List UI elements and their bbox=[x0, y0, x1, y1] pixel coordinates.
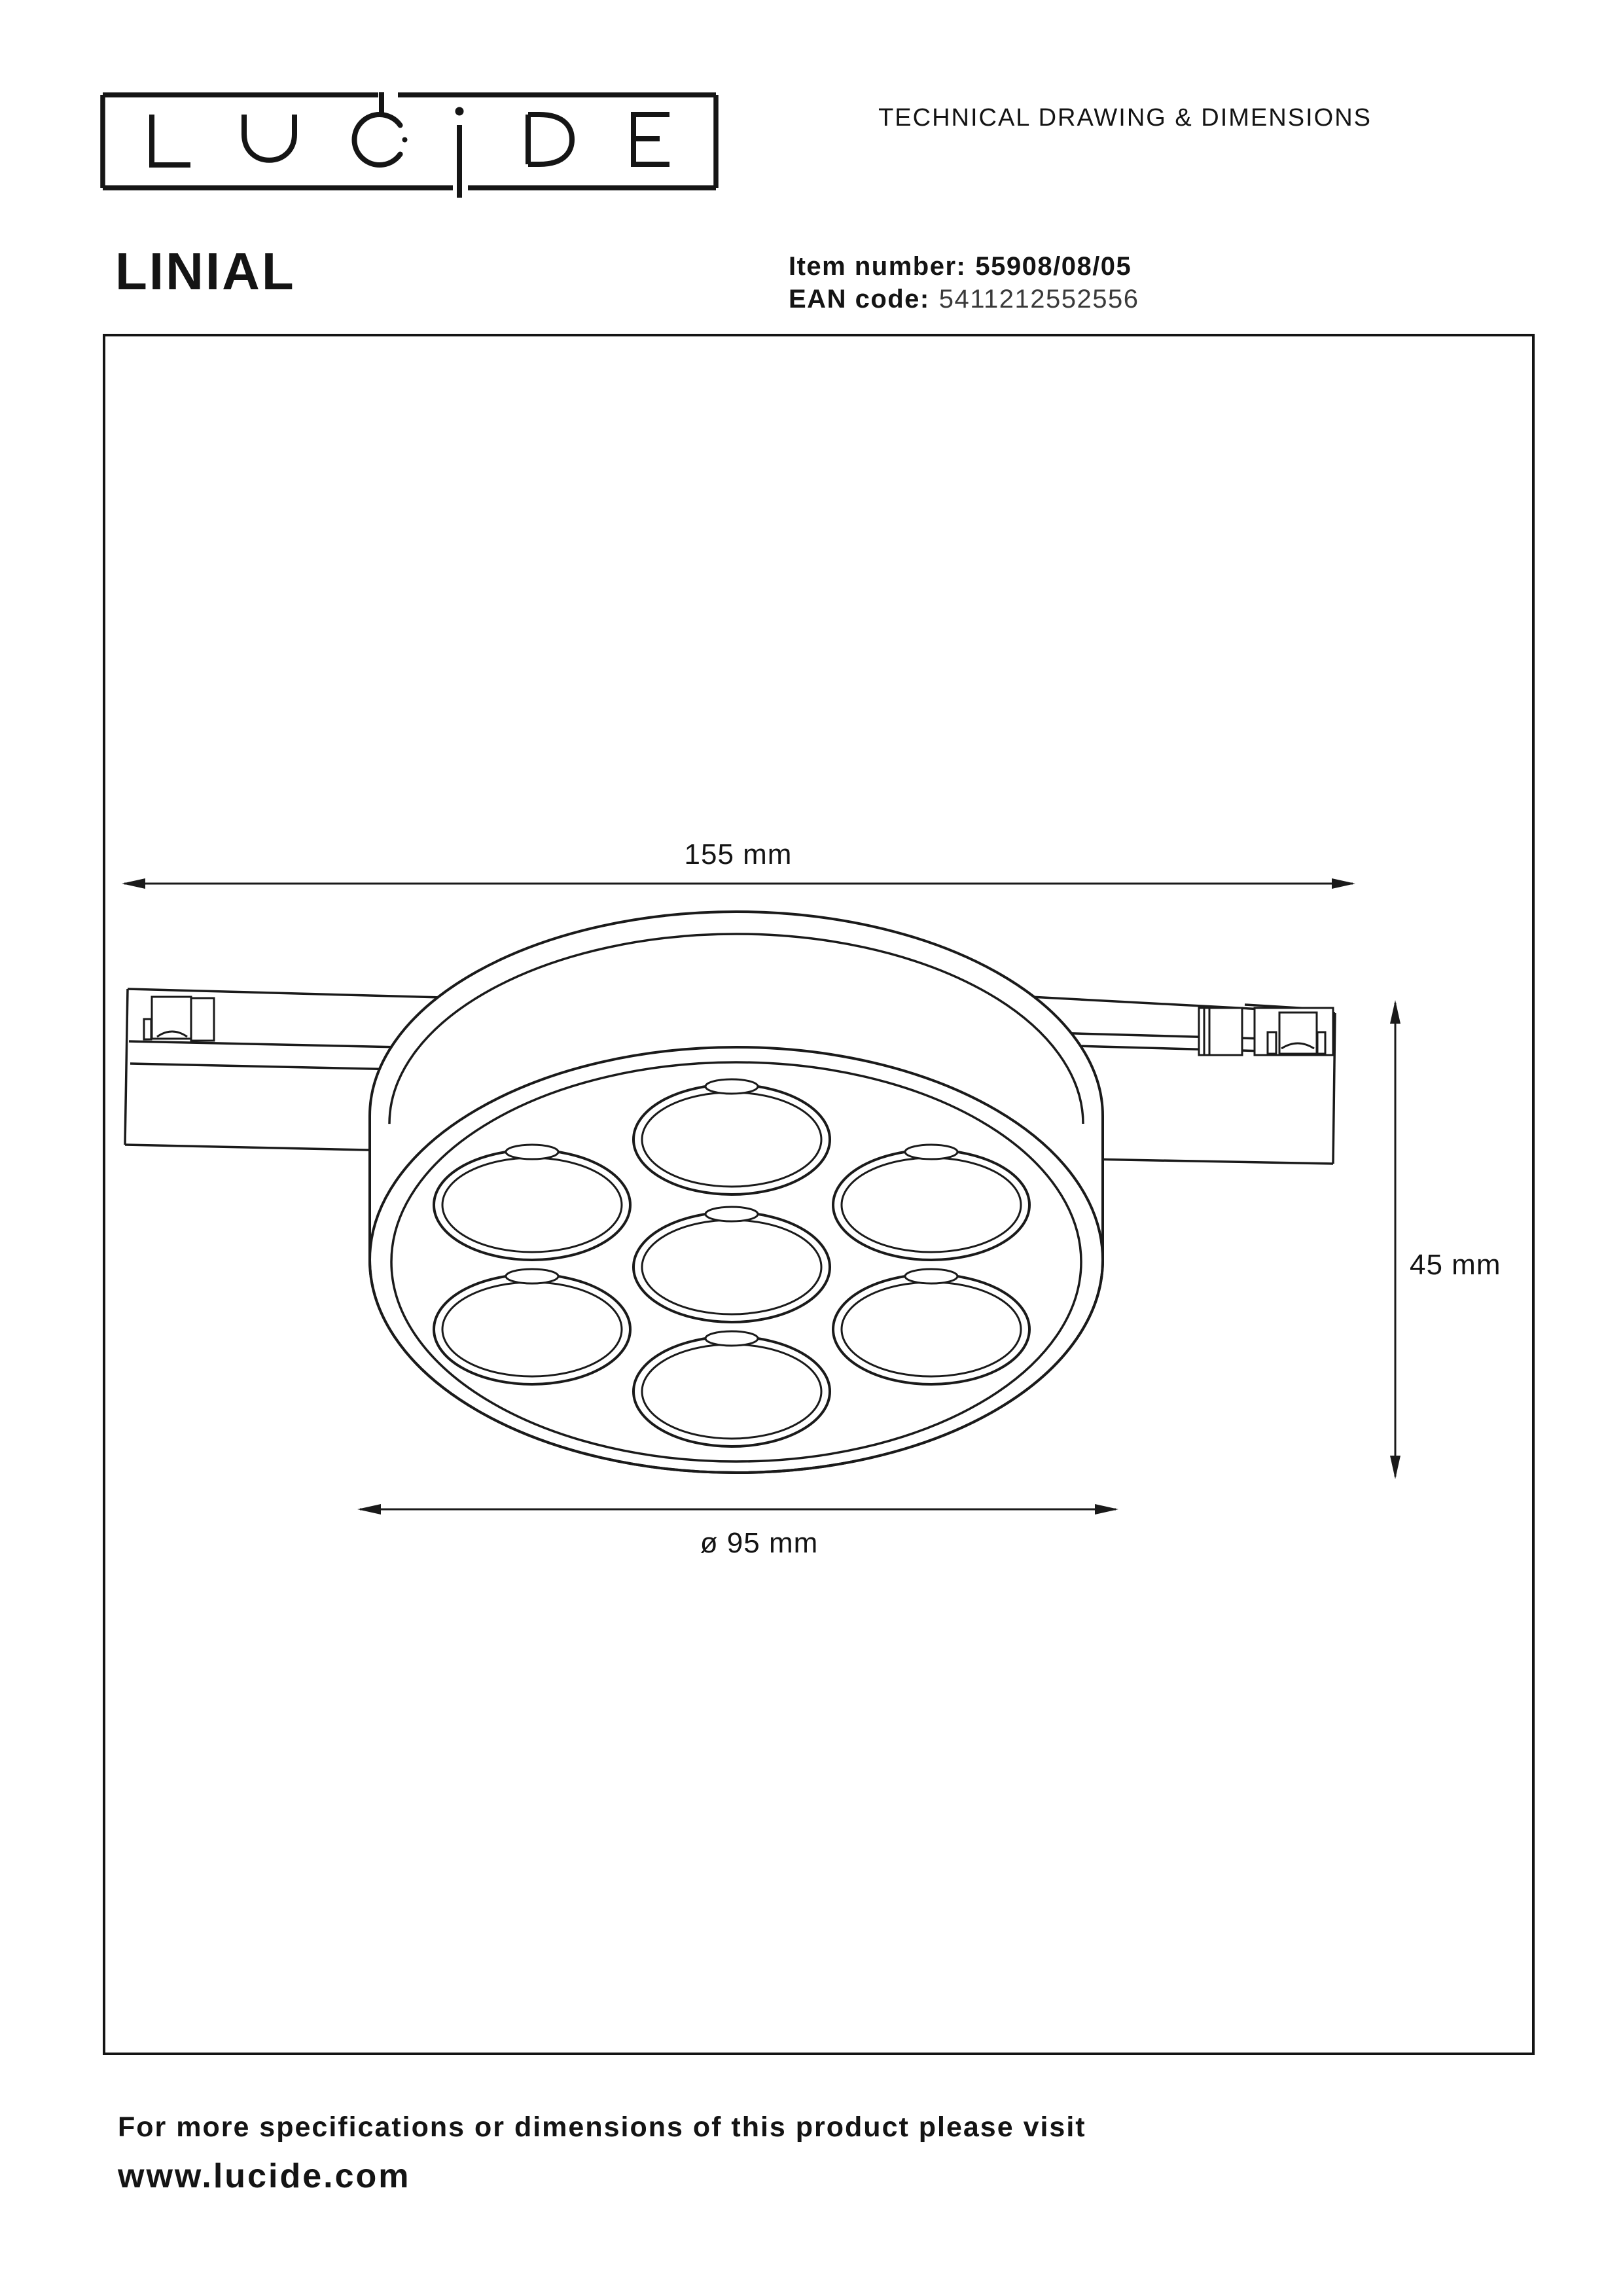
dim-height-label: 45 mm bbox=[1410, 1249, 1501, 1281]
track-connector-right bbox=[1199, 1008, 1333, 1055]
dim-diameter-label: ø 95 mm bbox=[700, 1527, 819, 1559]
technical-drawing bbox=[122, 878, 1400, 1515]
lucide-logo bbox=[103, 92, 716, 198]
logo-letter-u bbox=[244, 115, 294, 160]
logo-letter-d bbox=[528, 115, 572, 164]
ean-value: 5411212552556 bbox=[939, 285, 1139, 314]
product-name: LINIAL bbox=[115, 242, 296, 300]
logo-letter-i-dot bbox=[455, 107, 464, 116]
doc-title: TECHNICAL DRAWING & DIMENSIONS bbox=[878, 104, 1372, 132]
ean-line: EAN code:5411212552556 bbox=[789, 285, 1139, 314]
footer-website-link[interactable]: www.lucide.com bbox=[117, 2157, 411, 2195]
ean-label: EAN code: bbox=[789, 285, 930, 314]
item-number-value: 55908/08/05 bbox=[975, 252, 1132, 281]
spec-sheet-page: TECHNICAL DRAWING & DIMENSIONS LINIAL It… bbox=[0, 0, 1623, 2296]
lamp-body bbox=[370, 912, 1103, 1473]
logo-letter-c bbox=[355, 115, 405, 165]
logo-letter-e bbox=[633, 115, 669, 164]
logo-letter-l bbox=[152, 115, 190, 165]
track-connector-left bbox=[144, 997, 214, 1041]
item-number-line: Item number:55908/08/05 bbox=[789, 252, 1132, 281]
logo-box bbox=[103, 95, 716, 188]
dimension-height bbox=[1390, 1000, 1400, 1479]
item-number-label: Item number: bbox=[789, 252, 966, 281]
dim-width-label: 155 mm bbox=[685, 838, 793, 870]
footer-note: For more specifications or dimensions of… bbox=[118, 2111, 1086, 2143]
dimension-width bbox=[122, 878, 1355, 889]
dimension-diameter bbox=[357, 1504, 1118, 1515]
